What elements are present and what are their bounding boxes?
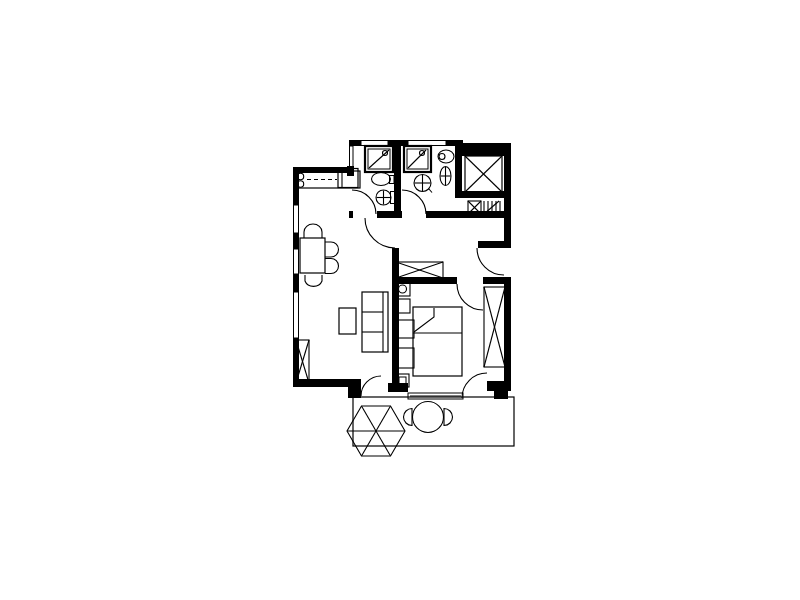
door-arc-living-room: [365, 218, 395, 248]
shower-2-diagonal: [408, 150, 426, 168]
wall-shaft-top: [461, 143, 511, 156]
terrace-table: [413, 402, 444, 433]
bed-side-table-1: [398, 320, 414, 338]
door-arc-entry: [477, 248, 504, 275]
door-arc-bedroom: [457, 284, 483, 310]
bed-side-table-2: [398, 348, 414, 368]
bedroom-stool-inner: [399, 377, 406, 384]
terrace-outline: [353, 397, 514, 446]
wall-entry-stub: [478, 241, 504, 248]
sofa-outline: [362, 292, 388, 352]
dining-chair-right-1: [325, 242, 339, 257]
window-left-3: [294, 292, 299, 338]
wall-hall-top-b: [377, 211, 402, 218]
window-bathroom-1: [361, 141, 388, 146]
door-arc-bathroom-1: [352, 190, 376, 214]
window-left-1: [294, 205, 299, 233]
wall-bath-divider: [394, 140, 401, 218]
nightstand-lamp: [399, 285, 407, 293]
floor-plan: [0, 0, 800, 600]
sink-2-tap: [429, 189, 433, 193]
wall-bath1-exterior: [350, 146, 354, 167]
wall-left-b: [293, 233, 299, 249]
wall-left-c: [293, 274, 299, 292]
dining-table: [300, 238, 325, 273]
toilet-2-bowl: [438, 150, 454, 163]
coffee-table: [339, 308, 356, 334]
wall-terrace-step: [348, 379, 361, 398]
door-arc-bedroom-terrace: [462, 373, 487, 398]
terrace-chair-left: [404, 409, 413, 426]
wall-bath-top-a: [349, 140, 361, 146]
toilet-2-flush: [439, 154, 445, 160]
floor-plan-page: [0, 0, 800, 600]
wall-bath2-right: [455, 140, 462, 198]
dining-chair-top: [304, 224, 322, 238]
door-arc-bathroom-2: [402, 190, 426, 214]
shower-1-diagonal: [369, 150, 389, 168]
terrace-chair-right: [444, 409, 453, 426]
wall-kitchen-top: [293, 167, 352, 173]
bed-fold: [414, 308, 434, 332]
window-left-2: [294, 249, 299, 274]
wall-hall-top-a: [349, 211, 353, 218]
door-arc-living-terrace: [361, 376, 381, 396]
sink-1-basin: [372, 173, 391, 186]
wall-bedroom-bottom-corner-b: [494, 388, 508, 399]
dining-chair-right-2: [325, 259, 339, 274]
window-bathroom-2: [408, 141, 446, 146]
dining-chair-bottom: [305, 275, 322, 286]
bed: [413, 307, 462, 376]
